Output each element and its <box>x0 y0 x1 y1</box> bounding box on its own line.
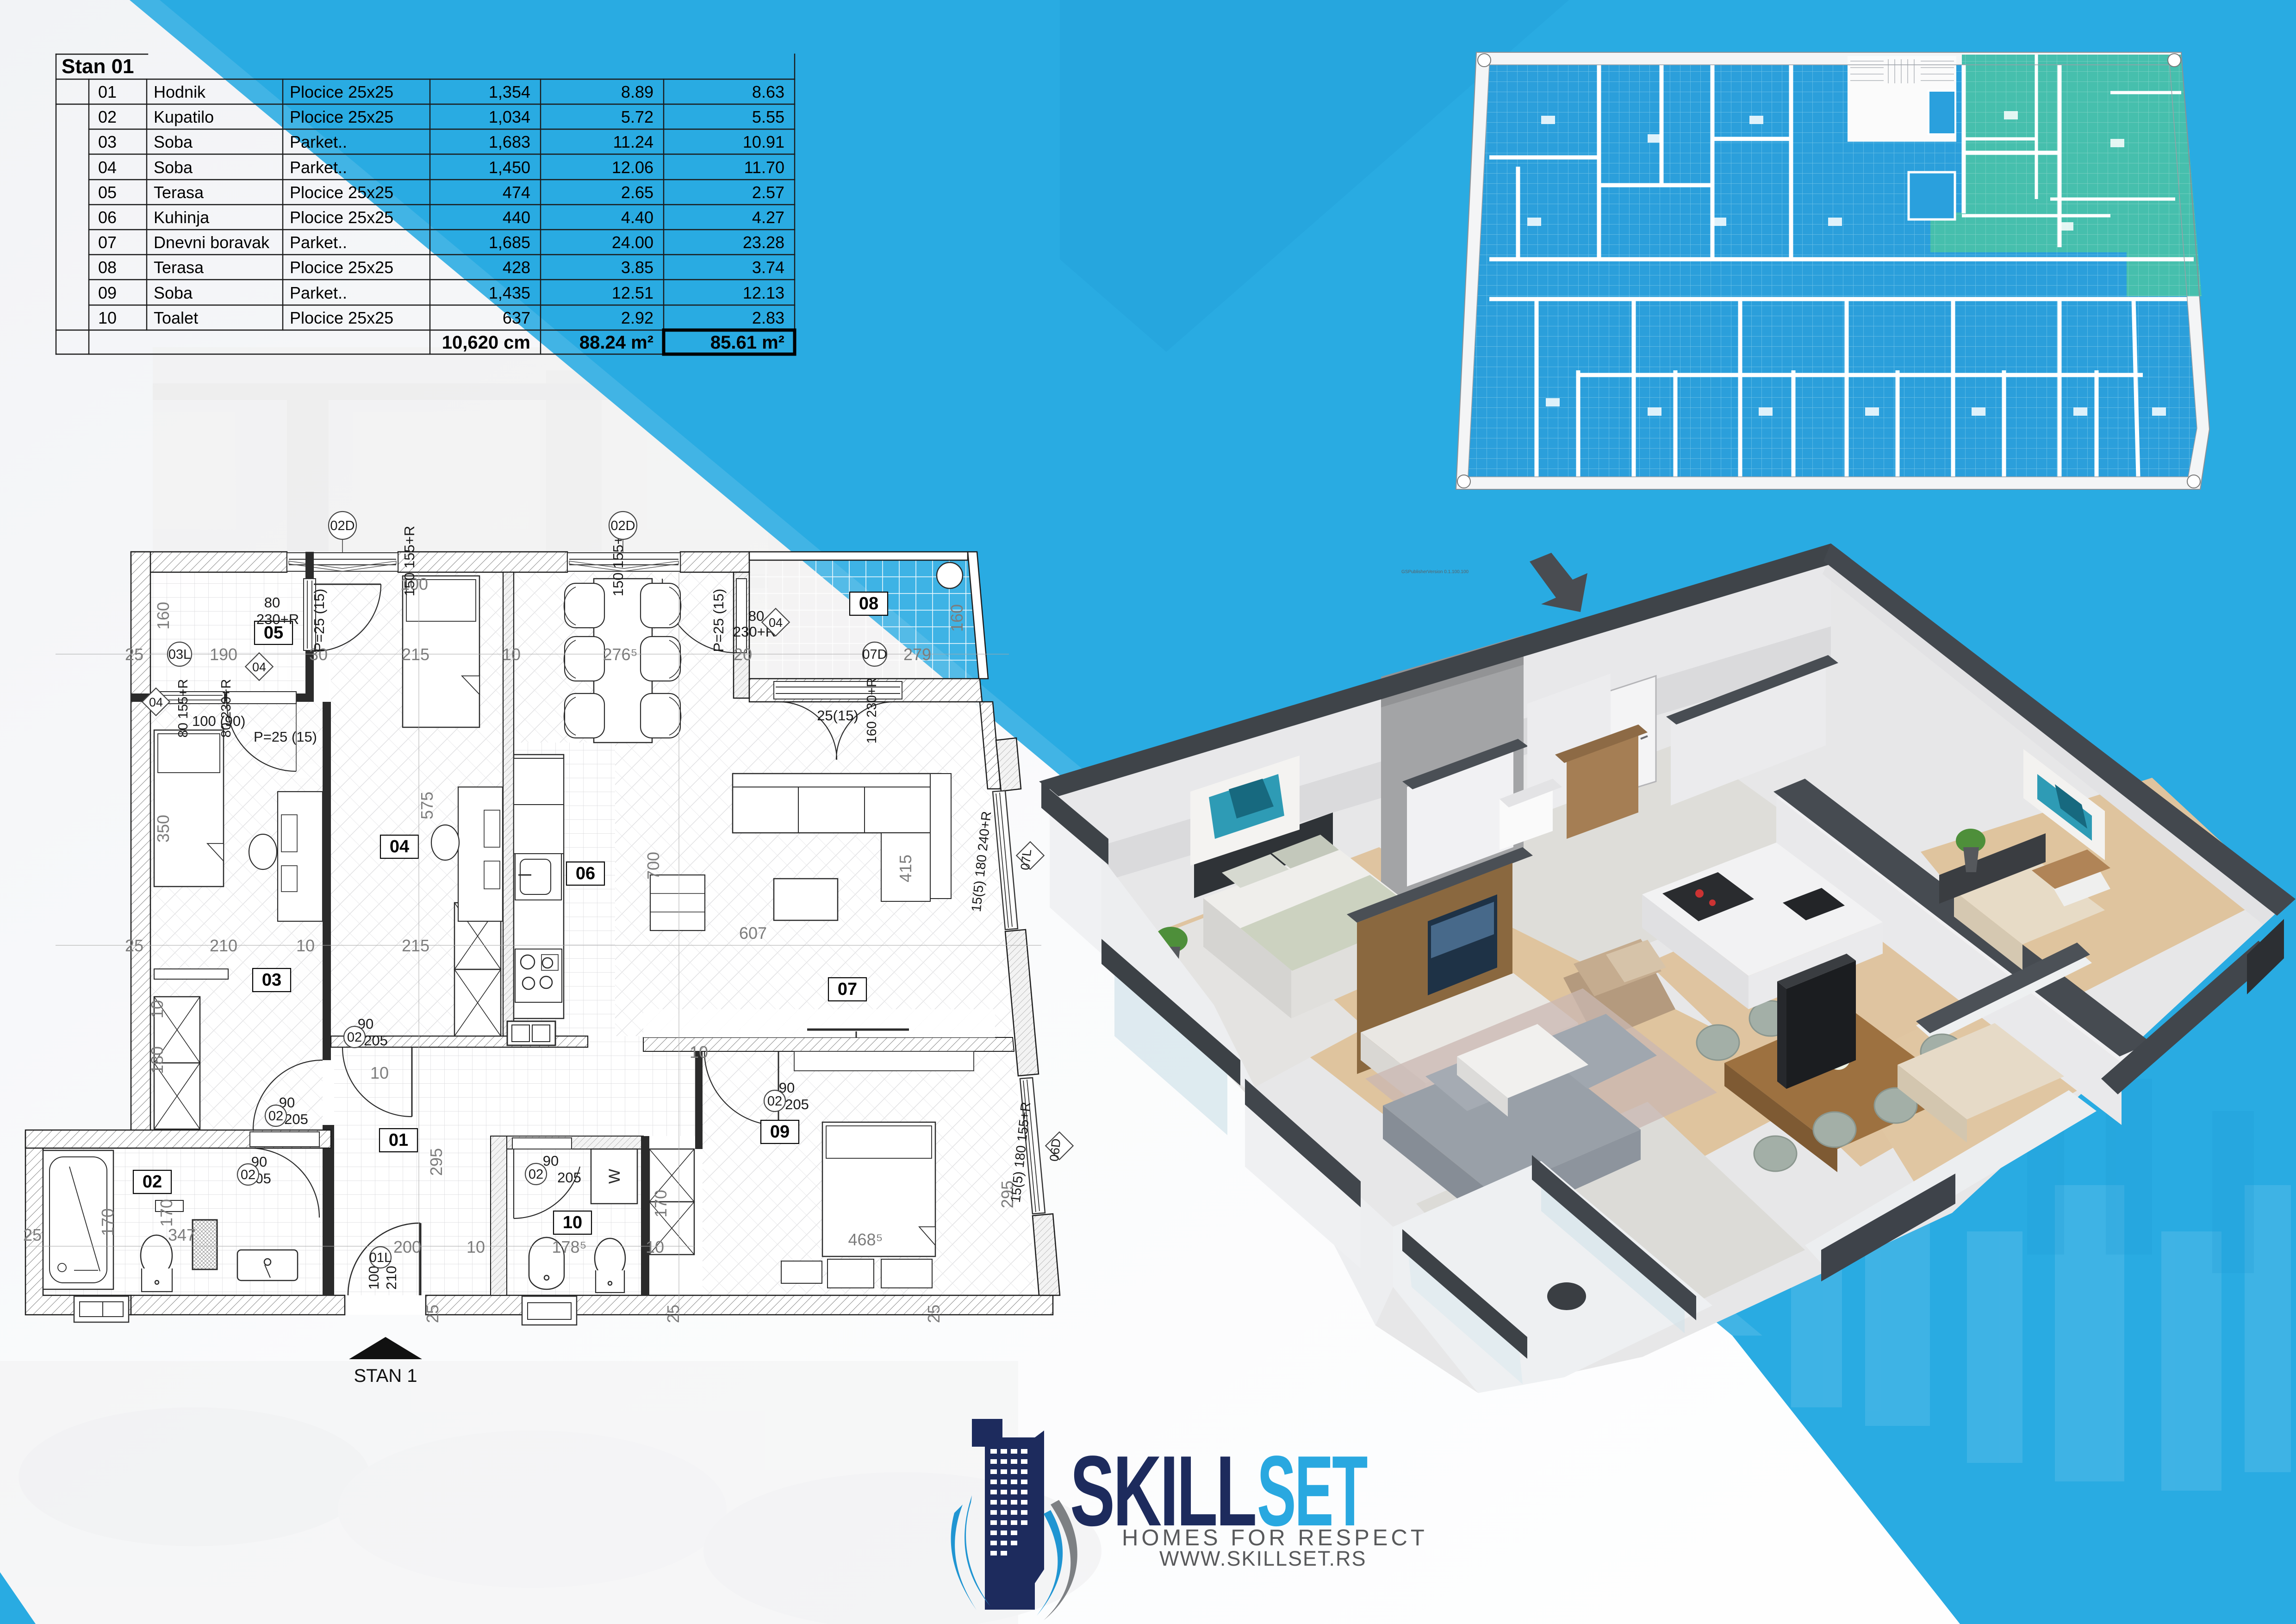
svg-text:03L: 03L <box>168 647 191 662</box>
svg-text:180: 180 <box>148 1046 167 1074</box>
svg-text:P=25 (15): P=25 (15) <box>710 588 727 652</box>
svg-text:428: 428 <box>503 258 530 277</box>
svg-text:Dnevni boravak: Dnevni boravak <box>154 233 270 252</box>
svg-text:Soba: Soba <box>154 132 193 151</box>
svg-text:02: 02 <box>529 1167 543 1182</box>
svg-text:06D: 06D <box>1047 1138 1064 1162</box>
svg-text:5.72: 5.72 <box>621 107 653 126</box>
svg-text:Terasa: Terasa <box>154 258 204 277</box>
svg-text:3.85: 3.85 <box>621 258 653 277</box>
svg-text:Plocice 25x25: Plocice 25x25 <box>290 208 393 227</box>
svg-text:276⁵: 276⁵ <box>603 645 638 664</box>
svg-text:08: 08 <box>98 258 117 277</box>
svg-text:170: 170 <box>651 1190 670 1218</box>
svg-text:Terasa: Terasa <box>154 183 204 202</box>
svg-text:4.27: 4.27 <box>752 208 784 227</box>
svg-text:205: 205 <box>785 1096 809 1112</box>
svg-text:Plocice 25x25: Plocice 25x25 <box>290 308 393 327</box>
svg-text:01: 01 <box>98 82 117 101</box>
svg-text:190: 190 <box>210 645 237 664</box>
svg-text:2.65: 2.65 <box>621 183 653 202</box>
svg-text:5.55: 5.55 <box>752 107 784 126</box>
svg-text:02: 02 <box>347 1030 362 1045</box>
svg-text:Plocice 25x25: Plocice 25x25 <box>290 258 393 277</box>
svg-text:1,354: 1,354 <box>489 82 530 101</box>
svg-text:205: 205 <box>557 1169 581 1186</box>
svg-text:04: 04 <box>98 158 117 177</box>
svg-text:295: 295 <box>427 1148 446 1176</box>
svg-text:25: 25 <box>125 936 143 955</box>
svg-text:02D: 02D <box>610 518 635 533</box>
svg-text:01: 01 <box>389 1131 408 1150</box>
svg-text:25(15): 25(15) <box>817 707 859 724</box>
svg-text:607: 607 <box>739 924 767 943</box>
svg-text:11.24: 11.24 <box>613 132 653 151</box>
svg-text:P=25 (15): P=25 (15) <box>311 588 327 652</box>
svg-text:200: 200 <box>393 1237 421 1256</box>
svg-text:12.51: 12.51 <box>612 283 653 302</box>
svg-text:210: 210 <box>210 936 237 955</box>
svg-text:Plocice 25x25: Plocice 25x25 <box>290 107 393 126</box>
svg-text:Parket..: Parket.. <box>290 132 347 151</box>
svg-text:10: 10 <box>502 645 521 664</box>
svg-text:215: 215 <box>402 645 429 664</box>
svg-text:8.89: 8.89 <box>621 82 653 101</box>
svg-text:WWW.SKILLSET.RS: WWW.SKILLSET.RS <box>1159 1547 1367 1570</box>
svg-text:Soba: Soba <box>154 158 193 177</box>
svg-text:25: 25 <box>423 1305 442 1323</box>
svg-text:W: W <box>606 1169 623 1184</box>
svg-text:Hodnik: Hodnik <box>154 82 206 101</box>
svg-text:12.13: 12.13 <box>743 283 784 302</box>
svg-text:2.83: 2.83 <box>752 308 784 327</box>
svg-text:06: 06 <box>576 864 595 883</box>
svg-text:STAN 1: STAN 1 <box>354 1366 417 1386</box>
svg-text:637: 637 <box>503 308 530 327</box>
svg-text:04: 04 <box>252 660 266 674</box>
svg-text:80 230+R: 80 230+R <box>219 679 234 738</box>
svg-text:10: 10 <box>467 1237 485 1256</box>
svg-text:09: 09 <box>770 1122 790 1142</box>
svg-text:1,683: 1,683 <box>489 132 530 151</box>
svg-text:90: 90 <box>543 1153 559 1169</box>
svg-text:09: 09 <box>98 283 117 302</box>
svg-text:25: 25 <box>924 1305 943 1323</box>
svg-text:10.91: 10.91 <box>743 132 784 151</box>
svg-text:Toalet: Toalet <box>154 308 198 327</box>
svg-text:01L: 01L <box>369 1250 392 1265</box>
svg-text:25: 25 <box>125 645 143 664</box>
svg-text:08: 08 <box>859 594 878 613</box>
svg-text:10: 10 <box>690 1043 708 1062</box>
svg-text:03: 03 <box>262 970 281 990</box>
svg-text:85.61 m²: 85.61 m² <box>710 332 784 353</box>
svg-text:474: 474 <box>503 183 530 202</box>
svg-text:700: 700 <box>644 852 663 880</box>
svg-text:1,034: 1,034 <box>489 107 530 126</box>
svg-text:3.74: 3.74 <box>752 258 784 277</box>
svg-text:178⁵: 178⁵ <box>552 1237 587 1256</box>
svg-text:P=25 (15): P=25 (15) <box>254 729 317 745</box>
svg-text:25: 25 <box>664 1305 683 1323</box>
svg-text:07: 07 <box>98 233 117 252</box>
svg-text:1,685: 1,685 <box>489 233 530 252</box>
svg-text:Plocice 25x25: Plocice 25x25 <box>290 183 393 202</box>
svg-text:170: 170 <box>98 1208 117 1236</box>
svg-text:Parket..: Parket.. <box>290 158 347 177</box>
svg-text:23.28: 23.28 <box>743 233 784 252</box>
svg-text:279: 279 <box>903 645 931 664</box>
svg-text:10,620 cm: 10,620 cm <box>442 332 530 353</box>
svg-text:11.70: 11.70 <box>744 158 784 177</box>
svg-text:80: 80 <box>264 594 280 611</box>
svg-text:150 155+R: 150 155+R <box>401 526 417 597</box>
svg-text:GSPublisherVersion 0.1.100.100: GSPublisherVersion 0.1.100.100 <box>1401 569 1469 575</box>
svg-text:03: 03 <box>98 132 117 151</box>
svg-text:347: 347 <box>168 1225 196 1244</box>
svg-text:10: 10 <box>98 308 117 327</box>
svg-text:160 230+R: 160 230+R <box>865 678 879 744</box>
svg-text:Stan 01: Stan 01 <box>62 55 134 78</box>
svg-text:8.63: 8.63 <box>752 82 784 101</box>
svg-text:07L: 07L <box>1018 849 1034 871</box>
svg-text:440: 440 <box>503 208 530 227</box>
svg-text:02: 02 <box>767 1094 782 1109</box>
svg-text:02D: 02D <box>330 518 355 533</box>
svg-text:160: 160 <box>154 602 173 630</box>
svg-text:210: 210 <box>383 1266 399 1290</box>
svg-text:80 155+R: 80 155+R <box>176 679 191 738</box>
svg-text:10: 10 <box>296 936 315 955</box>
svg-text:04: 04 <box>390 837 409 856</box>
svg-text:06: 06 <box>98 208 117 227</box>
svg-text:230+R: 230+R <box>256 611 299 627</box>
svg-text:160: 160 <box>947 604 966 632</box>
svg-text:4.40: 4.40 <box>621 208 653 227</box>
svg-text:88.24 m²: 88.24 m² <box>579 332 653 353</box>
svg-text:415: 415 <box>896 855 915 882</box>
svg-text:Kuhinja: Kuhinja <box>154 208 210 227</box>
svg-text:2.92: 2.92 <box>621 308 653 327</box>
svg-text:02: 02 <box>98 107 117 126</box>
svg-text:2.57: 2.57 <box>752 183 784 202</box>
svg-text:20: 20 <box>734 645 752 664</box>
svg-text:215: 215 <box>402 936 429 955</box>
svg-text:205: 205 <box>284 1111 308 1127</box>
svg-text:170: 170 <box>157 1199 176 1227</box>
svg-text:07D: 07D <box>862 647 887 662</box>
svg-text:1,450: 1,450 <box>489 158 530 177</box>
svg-text:Parket..: Parket.. <box>290 233 347 252</box>
svg-text:575: 575 <box>417 792 436 819</box>
svg-text:05: 05 <box>98 183 117 202</box>
svg-text:100: 100 <box>366 1266 382 1290</box>
svg-text:24.00: 24.00 <box>612 233 653 252</box>
svg-text:Parket..: Parket.. <box>290 283 347 302</box>
svg-text:07: 07 <box>838 980 857 999</box>
svg-text:04: 04 <box>149 695 163 709</box>
svg-text:02: 02 <box>241 1168 255 1182</box>
svg-text:1,435: 1,435 <box>489 283 530 302</box>
svg-text:Soba: Soba <box>154 283 193 302</box>
svg-text:12.06: 12.06 <box>612 158 653 177</box>
svg-text:10: 10 <box>563 1213 582 1232</box>
svg-text:02: 02 <box>268 1109 283 1124</box>
svg-text:205: 205 <box>364 1032 388 1049</box>
svg-text:10: 10 <box>646 1237 664 1256</box>
svg-text:04: 04 <box>769 616 783 630</box>
svg-text:350: 350 <box>154 815 173 843</box>
svg-text:25: 25 <box>23 1225 42 1244</box>
svg-text:10: 10 <box>370 1063 389 1082</box>
svg-text:Kupatilo: Kupatilo <box>154 107 214 126</box>
svg-text:468⁵: 468⁵ <box>848 1230 883 1249</box>
svg-text:10: 10 <box>148 1000 167 1018</box>
svg-text:02: 02 <box>143 1172 162 1192</box>
svg-text:Plocice 25x25: Plocice 25x25 <box>290 82 393 101</box>
